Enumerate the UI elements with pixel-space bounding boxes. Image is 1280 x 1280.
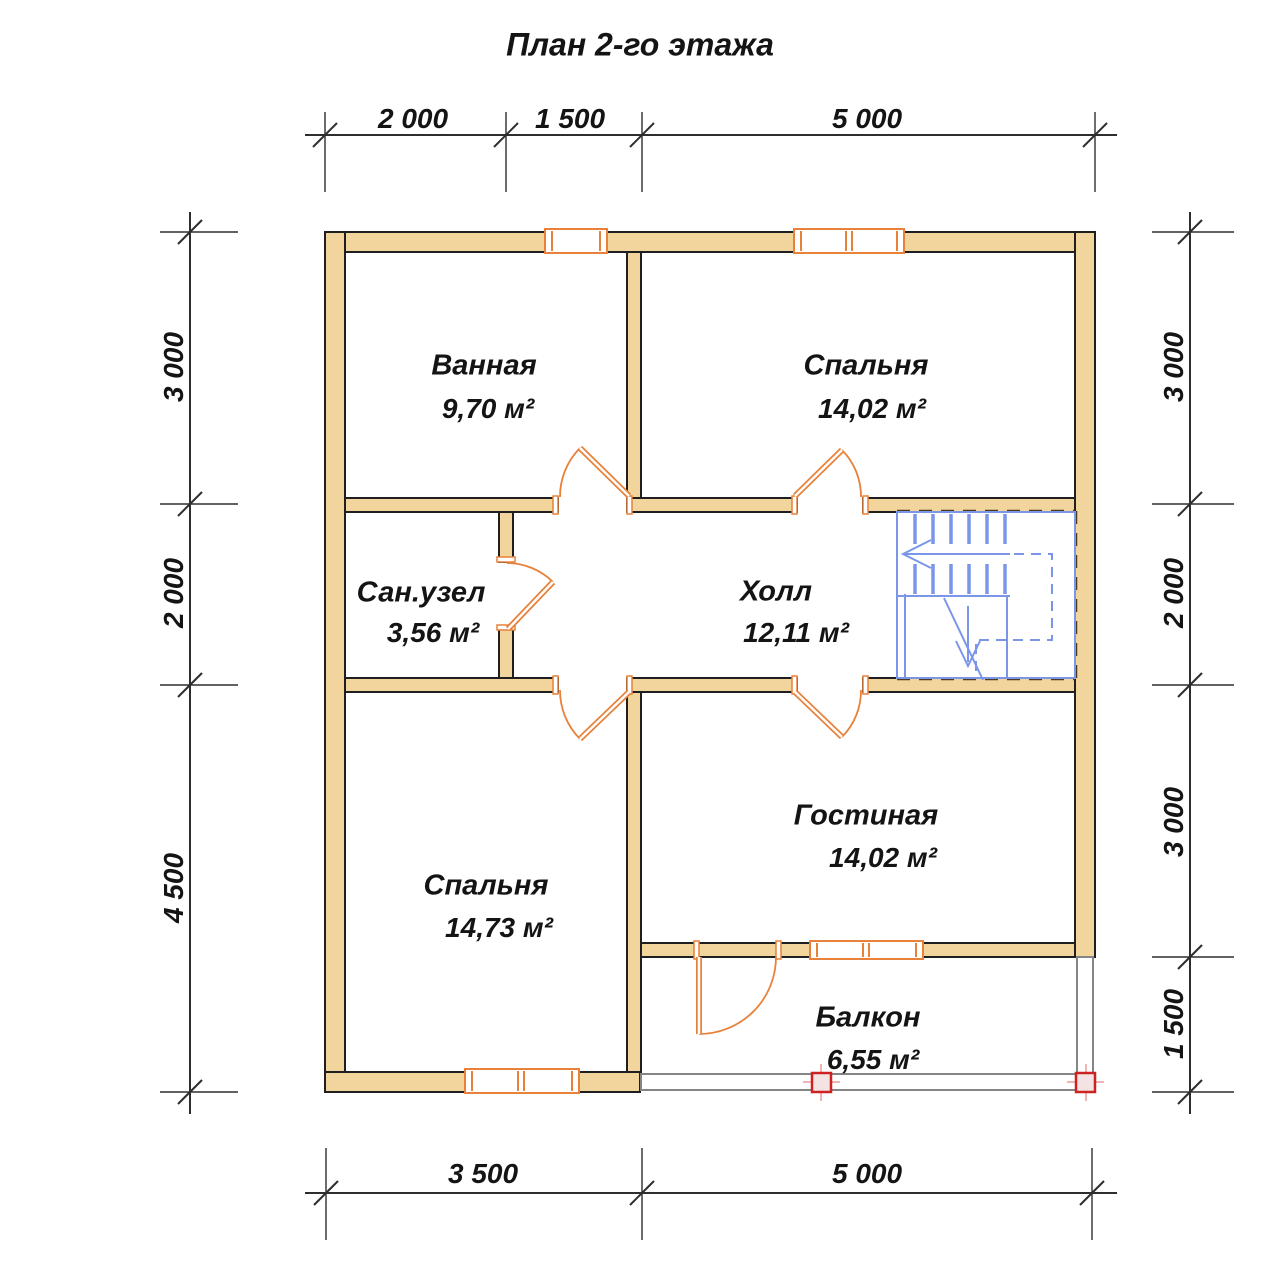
room-label-bedroom-top: Спальня: [804, 350, 929, 383]
bedroom-top-door: [795, 450, 861, 497]
stairs-icon: [897, 512, 1075, 680]
dim-top-2: 1 500: [535, 103, 605, 135]
dimension-lines: [160, 112, 1234, 1240]
dim-top-1: 2 000: [378, 103, 448, 135]
room-area-living-room: 14,02 м²: [829, 842, 937, 874]
living-room-door: [795, 690, 861, 737]
bedroom-top-window: [794, 229, 904, 253]
dim-left-1: 3 000: [158, 332, 190, 402]
room-area-bathroom: 9,70 м²: [442, 393, 534, 425]
dim-bottom-2: 5 000: [832, 1158, 902, 1190]
room-area-balcony: 6,55 м²: [827, 1044, 919, 1076]
dim-top-3: 5 000: [832, 103, 902, 135]
bedroom-bottom-door: [560, 690, 629, 739]
dim-left-2: 2 000: [158, 558, 190, 628]
dim-right-2: 2 000: [1158, 558, 1190, 628]
living-room-window: [810, 941, 923, 959]
room-label-bedroom-bottom: Спальня: [424, 870, 549, 903]
door-jambs: [497, 496, 868, 959]
bathroom-door: [560, 448, 629, 497]
room-label-hall: Холл: [740, 576, 812, 609]
dim-right-4: 1 500: [1158, 989, 1190, 1059]
room-label-bathroom: Ванная: [431, 350, 536, 383]
floor-plan-page: План 2-го этажа Ванная 9,70 м² Спальня 1…: [0, 0, 1280, 1280]
balcony-door: [699, 957, 776, 1034]
room-label-wc: Сан.узел: [357, 577, 486, 610]
dim-left-3: 4 500: [158, 853, 190, 923]
room-area-bedroom-top: 14,02 м²: [818, 393, 926, 425]
room-area-hall: 12,11 м²: [743, 617, 849, 649]
room-label-balcony: Балкон: [816, 1002, 921, 1035]
page-title: План 2-го этажа: [506, 27, 774, 64]
room-area-wc: 3,56 м²: [387, 617, 479, 649]
dim-right-1: 3 000: [1158, 332, 1190, 402]
floor-plan-drawing: [0, 0, 1280, 1280]
room-label-living-room: Гостиная: [794, 800, 938, 833]
bedroom-bottom-window: [465, 1069, 579, 1093]
room-area-bedroom-bottom: 14,73 м²: [445, 912, 553, 944]
bathroom-window: [545, 229, 607, 253]
dim-bottom-1: 3 500: [448, 1158, 518, 1190]
dim-right-3: 3 000: [1158, 787, 1190, 857]
wc-door: [507, 563, 553, 629]
